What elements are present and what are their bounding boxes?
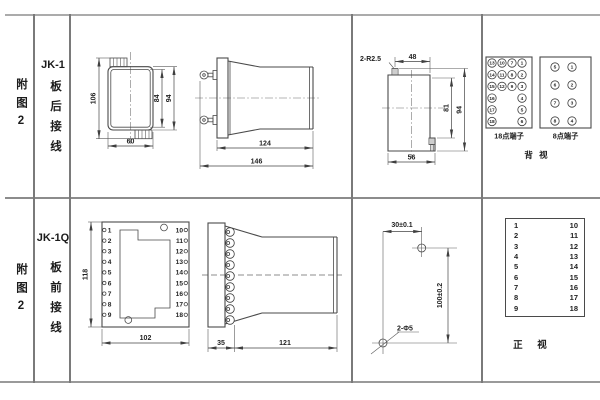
terminal-table-row: 817 (506, 293, 584, 303)
terminal-18pt-number: 9 (511, 84, 514, 90)
dim-121: 121 (279, 340, 291, 347)
terminal-number-left: 7 (514, 283, 518, 293)
terminal-8pt-label: 8点端子 (553, 132, 579, 141)
side-terminal-bump-inner (227, 242, 230, 245)
front-view-caption: 正 视 (500, 337, 566, 351)
terminal-table-row: 413 (506, 252, 584, 262)
front-terminal-circle (184, 239, 187, 242)
front-terminal-circle (103, 239, 106, 242)
front-terminal-circle (184, 260, 187, 263)
front-terminal-circle (184, 292, 187, 295)
wiring-label-row1: 板后接线 (48, 80, 61, 160)
terminal-number-left: 3 (514, 242, 518, 252)
note-hole-size: 2-Φ5 (397, 326, 413, 333)
terminal-number-left: 1 (514, 221, 518, 231)
model-label-jk1q: JK-1Q (34, 232, 72, 244)
front-terminal-number: 9 (108, 312, 112, 319)
dim-35: 35 (217, 340, 225, 347)
mounting-hole-top (161, 224, 168, 231)
front-terminal-number: 5 (108, 270, 112, 277)
jk1-front-view-drawing: 106 84 94 60 (88, 48, 188, 160)
front-terminal-circle (103, 250, 106, 253)
front-terminal-circle (103, 260, 106, 263)
model-label-jk1: JK-1 (35, 59, 71, 71)
side-terminal-bumps (226, 228, 235, 325)
terminal-18pt-label: 18点端子 (494, 132, 524, 141)
terminal-8pt-number: 7 (554, 101, 557, 107)
side-terminal-bump-inner (227, 319, 230, 322)
grid-line-v3 (351, 14, 353, 383)
terminal-number-left: 6 (514, 273, 518, 283)
dim-102: 102 (140, 335, 152, 342)
jk1q-front-view-drawing: 123456789 101112131415161718 118 102 (75, 213, 200, 355)
dim-81: 81 (443, 104, 450, 112)
dim-56: 56 (408, 155, 416, 162)
terminal-number-right: 14 (570, 262, 578, 272)
terminal-number-right: 11 (570, 231, 578, 241)
terminal-table-row: 716 (506, 283, 584, 293)
terminal-18pt-number: 3 (521, 84, 524, 90)
terminal-table-row: 615 (506, 273, 584, 283)
terminal-18pt-number: 16 (489, 96, 495, 102)
front-terminal-number: 10 (176, 227, 184, 234)
terminal-number-right: 12 (570, 242, 578, 252)
dim-124: 124 (259, 140, 271, 147)
front-terminal-number: 4 (108, 259, 112, 266)
terminal-table-row: 110 (506, 221, 584, 231)
terminal-number-right: 17 (570, 293, 578, 303)
terminal-8pt-circles: 56781234 (551, 63, 576, 125)
front-terminal-number: 8 (108, 302, 112, 309)
terminal-18pt-number: 2 (521, 72, 524, 78)
terminal-18pt-number: 18 (489, 119, 495, 125)
front-terminal-circle (103, 303, 106, 306)
drilling-plan-drawing: 30±0.1 100±0.2 2-Φ5 (362, 216, 474, 366)
construction-lines (372, 227, 457, 354)
terminal-table-row: 312 (506, 242, 584, 252)
terminal-18pt-number: 14 (489, 72, 495, 78)
terminal-18pt-circles: 131415161718101112789123456 (488, 59, 526, 126)
terminal-8pt-number: 8 (554, 119, 557, 125)
dim-94b: 94 (456, 106, 463, 114)
front-terminal-number: 7 (108, 291, 112, 298)
terminal-18pt-number: 15 (489, 84, 495, 90)
dim-60: 60 (127, 139, 135, 146)
terminal-18pt-number: 1 (521, 61, 524, 67)
side-terminal-bump-inner (227, 308, 230, 311)
grid-line-middle (5, 197, 600, 199)
rear-view-caption: 背 视 (524, 150, 549, 160)
side-terminal-bump-inner (227, 275, 230, 278)
wiring-label-row2: 板前接线 (48, 261, 61, 341)
grid-line-bottom (0, 381, 600, 383)
dim-30: 30±0.1 (391, 222, 412, 229)
terminal-18pt-number: 12 (499, 84, 505, 90)
terminal-18pt-number: 4 (521, 96, 524, 102)
figure-label-row1: 附图2 (14, 78, 27, 134)
terminal-number-left: 8 (514, 293, 518, 303)
dim-100: 100±0.2 (437, 283, 444, 308)
front-terminals-left: 123456789 (103, 227, 112, 319)
front-terminal-circle (184, 250, 187, 253)
front-view-terminal-table: 110211312413514615716817918 (505, 218, 585, 317)
front-terminal-number: 16 (176, 291, 184, 298)
terminal-table-row: 918 (506, 304, 584, 314)
jk1-side-view-drawing: 124 146 (193, 48, 323, 173)
front-terminal-number: 6 (108, 280, 112, 287)
terminal-8pt-number: 1 (571, 65, 574, 71)
front-terminal-circle (184, 281, 187, 284)
terminal-number-right: 15 (570, 273, 578, 283)
figure-label-row2: 附图2 (14, 263, 27, 319)
terminal-8pt-number: 5 (554, 65, 557, 71)
terminal-number-right: 18 (570, 304, 578, 314)
terminal-number-right: 13 (570, 252, 578, 262)
terminal-table-row: 211 (506, 231, 584, 241)
front-terminal-circle (103, 292, 106, 295)
dim-48: 48 (409, 54, 417, 61)
terminal-18pt-number: 13 (489, 61, 495, 67)
terminal-8pt-box (540, 57, 591, 128)
front-terminal-circle (103, 228, 106, 231)
front-terminal-number: 12 (176, 249, 184, 256)
terminal-table-rows: 110211312413514615716817918 (506, 221, 584, 314)
terminal-number-left: 5 (514, 262, 518, 272)
front-terminal-circle (103, 271, 106, 274)
front-terminal-circle (103, 281, 106, 284)
front-terminal-number: 2 (108, 238, 112, 245)
front-terminal-number: 15 (176, 280, 184, 287)
side-terminal-bump-inner (227, 253, 230, 256)
front-terminal-number: 1 (108, 227, 112, 234)
grid-line-top (5, 14, 600, 16)
terminal-number-right: 10 (570, 221, 578, 231)
terminal-number-left: 2 (514, 231, 518, 241)
dim-146: 146 (251, 158, 263, 165)
side-terminal-bump-inner (227, 231, 230, 234)
front-terminal-number: 17 (176, 302, 184, 309)
terminal-table-row: 514 (506, 262, 584, 272)
front-terminal-circle (184, 228, 187, 231)
terminal-8pt-number: 3 (571, 101, 574, 107)
side-terminal-bump-inner (227, 264, 230, 267)
front-terminal-number: 13 (176, 259, 184, 266)
terminal-8pt-number: 4 (571, 119, 574, 125)
jk1q-side-view-drawing: 35 121 (200, 213, 348, 355)
terminal-18pt-number: 10 (499, 61, 505, 67)
front-terminal-number: 11 (176, 238, 183, 245)
note-corner-radius: 2-R2.5 (360, 56, 381, 63)
terminal-18pt-number: 6 (521, 119, 524, 125)
rear-terminal-layout-drawing: 131415161718101112789123456 56781234 18点… (482, 53, 600, 165)
mounting-screws (200, 71, 217, 125)
dim-106: 106 (91, 92, 98, 104)
front-terminal-number: 3 (108, 249, 112, 256)
front-terminals-right: 101112131415161718 (176, 227, 188, 319)
side-terminal-bump-inner (227, 297, 230, 300)
front-terminal-number: 14 (176, 270, 184, 277)
terminal-18pt-number: 17 (489, 108, 495, 114)
front-terminal-number: 18 (176, 312, 184, 319)
terminal-18pt-number: 7 (511, 61, 514, 67)
dim-84: 84 (154, 94, 161, 102)
terminal-number-left: 9 (514, 304, 518, 314)
terminal-8pt-number: 6 (554, 83, 557, 89)
dim-94: 94 (166, 94, 173, 102)
front-terminal-circle (184, 271, 187, 274)
front-terminal-circle (184, 313, 187, 316)
terminal-18pt-number: 5 (521, 108, 524, 114)
terminal-8pt-number: 2 (571, 83, 574, 89)
terminal-number-right: 16 (570, 283, 578, 293)
terminal-number-left: 4 (514, 252, 518, 262)
dim-118: 118 (82, 269, 89, 280)
terminal-18pt-number: 11 (499, 72, 504, 78)
side-terminal-bump-inner (227, 286, 230, 289)
panel-cutout-drawing: 2-R2.5 48 81 94 56 (358, 48, 480, 174)
terminal-18pt-number: 8 (511, 72, 514, 78)
front-terminal-circle (184, 303, 187, 306)
front-terminal-circle (103, 313, 106, 316)
